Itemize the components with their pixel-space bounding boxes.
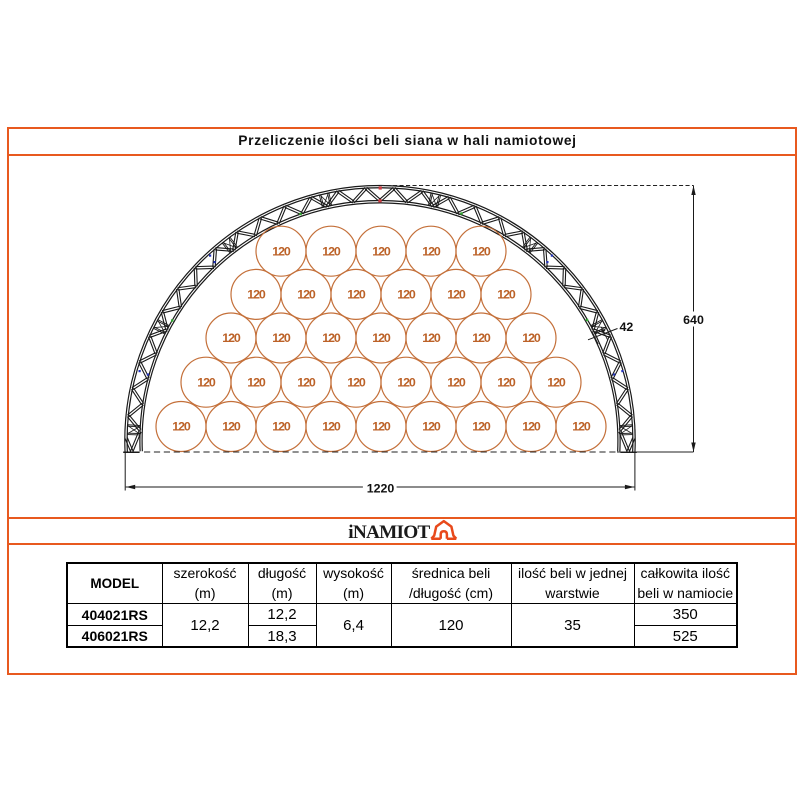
- svg-text:120: 120: [272, 331, 291, 345]
- svg-text:120: 120: [372, 331, 391, 345]
- svg-text:120: 120: [572, 420, 591, 434]
- svg-text:120: 120: [322, 244, 341, 258]
- svg-text:120: 120: [472, 331, 491, 345]
- svg-text:120: 120: [547, 375, 566, 389]
- svg-text:120: 120: [247, 288, 266, 302]
- svg-text:120: 120: [472, 244, 491, 258]
- svg-text:120: 120: [197, 375, 216, 389]
- svg-text:640: 640: [683, 313, 704, 327]
- svg-text:120: 120: [372, 420, 391, 434]
- svg-text:120: 120: [322, 420, 341, 434]
- svg-text:120: 120: [497, 375, 516, 389]
- svg-text:120: 120: [297, 288, 316, 302]
- svg-text:120: 120: [447, 375, 466, 389]
- svg-text:120: 120: [372, 244, 391, 258]
- svg-text:120: 120: [422, 331, 441, 345]
- svg-text:120: 120: [172, 420, 191, 434]
- svg-text:120: 120: [322, 331, 341, 345]
- svg-text:1220: 1220: [367, 481, 395, 495]
- svg-text:120: 120: [222, 331, 241, 345]
- svg-text:120: 120: [447, 288, 466, 302]
- svg-text:120: 120: [272, 420, 291, 434]
- svg-text:120: 120: [397, 375, 416, 389]
- svg-text:120: 120: [522, 331, 541, 345]
- svg-text:120: 120: [397, 288, 416, 302]
- svg-text:120: 120: [497, 288, 516, 302]
- svg-text:120: 120: [347, 375, 366, 389]
- svg-text:120: 120: [297, 375, 316, 389]
- svg-text:120: 120: [222, 420, 241, 434]
- svg-text:120: 120: [522, 420, 541, 434]
- svg-text:120: 120: [347, 288, 366, 302]
- svg-text:120: 120: [422, 244, 441, 258]
- svg-text:120: 120: [422, 420, 441, 434]
- svg-text:42: 42: [620, 320, 634, 334]
- svg-text:120: 120: [472, 420, 491, 434]
- svg-text:120: 120: [247, 375, 266, 389]
- svg-text:120: 120: [272, 244, 291, 258]
